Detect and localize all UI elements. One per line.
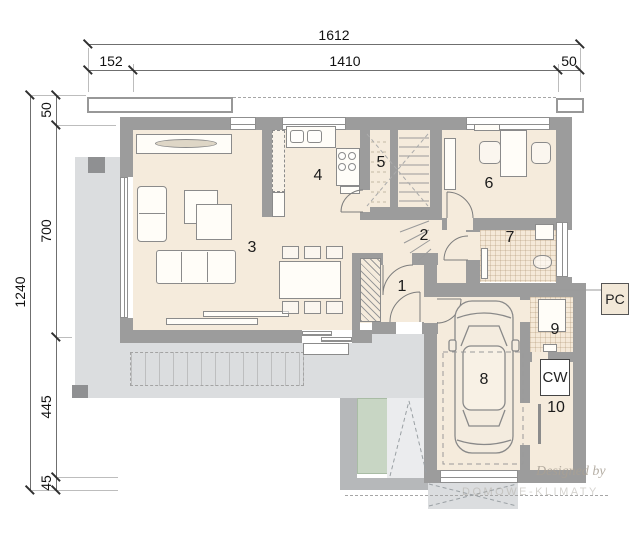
dimension-line: [56, 95, 57, 490]
extension-line: [58, 477, 118, 478]
room-label-4: 4: [314, 167, 323, 185]
room-label-8: 8: [480, 371, 489, 389]
extension-line: [58, 337, 72, 338]
dim-left-seg-2: 700: [38, 219, 54, 242]
door-swings: [341, 190, 473, 323]
pc-label: PC: [605, 291, 624, 307]
pantry-shelves: [371, 142, 389, 202]
room-label-6: 6: [485, 175, 494, 193]
room-label-5: 5: [377, 154, 386, 172]
dim-top-seg-3: 50: [561, 53, 577, 69]
cw-label: CW: [543, 369, 568, 386]
dim-left-seg-1: 50: [38, 102, 54, 118]
room-label-10: 10: [547, 399, 565, 417]
dimension-line: [88, 44, 580, 45]
extension-line: [58, 125, 116, 126]
dim-top-seg-2: 1410: [329, 53, 360, 69]
room-label-9: 9: [551, 321, 560, 339]
dim-left-seg-3: 445: [38, 395, 54, 418]
room-label-7: 7: [506, 229, 515, 247]
dim-top-total: 1612: [318, 27, 349, 43]
pc-box: PC: [601, 283, 629, 315]
room-label-2: 2: [420, 227, 429, 245]
watermark-line1: Designed by: [536, 464, 606, 480]
dim-left-total: 1240: [12, 276, 28, 307]
room-label-1: 1: [398, 278, 407, 296]
dim-top-seg-1: 152: [99, 53, 122, 69]
floor-plan: PC CW 1 2 3 4 5 6 7 8 9 10 1612 152 1410…: [0, 0, 638, 556]
dimension-line: [88, 70, 580, 71]
cw-box: CW: [540, 359, 570, 396]
dimension-line: [30, 95, 31, 490]
dim-left-seg-4: 45: [38, 475, 54, 491]
room-label-3: 3: [248, 239, 257, 257]
watermark-line2: DOMOWE-KLIMATY: [462, 486, 599, 498]
